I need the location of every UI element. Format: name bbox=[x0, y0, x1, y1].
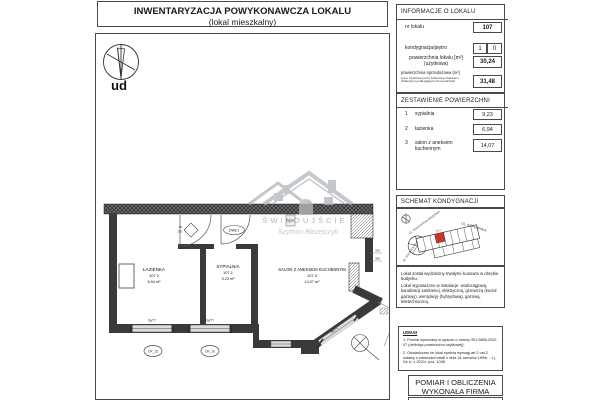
dim-330: 330 bbox=[375, 249, 380, 253]
room-bedroom-name: SYPIALNIA bbox=[216, 264, 239, 269]
usable-area-value: 30,24 bbox=[473, 56, 502, 68]
area-table-header: ZESTAWIENIE POWIERZCHNI bbox=[397, 94, 508, 108]
room-bedroom-number: 107.1 bbox=[223, 270, 234, 275]
hall-wall-right bbox=[236, 244, 258, 249]
area-table-section: ZESTAWIENIE POWIERZCHNI 1 sypialnia 9,23… bbox=[396, 93, 505, 190]
room-livingroom-name: SALON Z ANEKSEM KUCHENNYM bbox=[278, 267, 346, 272]
room-bathroom-number: 107.2 bbox=[149, 273, 160, 278]
usable-area-sublabel: (użytkowa) bbox=[405, 62, 467, 68]
left-wall bbox=[109, 214, 117, 333]
sales-area-value: 31,48 bbox=[473, 75, 502, 88]
info-header: INFORMACJE O LOKALU bbox=[397, 5, 508, 20]
room-bathroom-name: ŁAZIENKA bbox=[143, 267, 165, 272]
floor-schematic: 107 UL. KOPERNIKA UL. BOHATERÓW WRZEŚNIA… bbox=[397, 209, 504, 265]
schematic-header: SCHEMAT KONDYGNACJI bbox=[397, 196, 508, 207]
partition-livingroom bbox=[251, 249, 258, 333]
sill-label-2: hp/77 bbox=[206, 319, 214, 323]
door-width-dim: 90 bbox=[179, 225, 183, 229]
schematic-header-box: SCHEMAT KONDYGNACJI bbox=[396, 195, 505, 208]
room-bedroom-area: 9,23 m² bbox=[222, 277, 236, 281]
sill-label-1: hp/77 bbox=[148, 319, 156, 323]
entrance-door-label: DWe1 bbox=[229, 229, 239, 233]
surveyor-line-2: WYKONAŁA FIRMA bbox=[409, 387, 502, 396]
room-bathroom-area: 6,94 m² bbox=[148, 280, 162, 284]
unit-number-value: 107 bbox=[473, 22, 502, 33]
window-bay bbox=[318, 314, 359, 346]
remarks-section: UWAGI 1. Pomiar wykonany w oparciu o nor… bbox=[398, 326, 503, 371]
unit-number-label: nr lokalu bbox=[405, 25, 424, 31]
north-arrow-icon bbox=[104, 45, 139, 80]
watermark-city: ŚWINOUJŚCIE bbox=[262, 216, 347, 225]
door-diamond-tag bbox=[184, 223, 198, 237]
remarks-header: UWAGI bbox=[403, 330, 417, 335]
row-3-name: salon z aneksem kuchennym bbox=[415, 141, 467, 152]
row-2-no: 2 bbox=[405, 127, 408, 133]
window-mark-1: OK_15 bbox=[148, 349, 158, 353]
door-height-dim: 205 bbox=[177, 230, 182, 234]
shaft-top-right bbox=[351, 214, 373, 238]
schematic-compass-icon bbox=[402, 214, 410, 224]
bay-connector-wall bbox=[354, 289, 381, 302]
floor-label: kondygnacja/piętro bbox=[405, 46, 447, 52]
neighbor-balcony-lines bbox=[378, 302, 389, 346]
window-1 bbox=[130, 324, 174, 333]
schematic-map-box: 107 UL. KOPERNIKA UL. BOHATERÓW WRZEŚNIA… bbox=[396, 208, 505, 266]
row-2-name: łazienka bbox=[415, 127, 469, 133]
surveyor-line-1: POMIAR I OBLICZENIA bbox=[409, 378, 502, 387]
dim-385: 385 bbox=[375, 257, 380, 261]
watermark-signature: Szymon Błażejczyk bbox=[278, 229, 339, 236]
note-installations: Lokal wyposażono w instalacje: wodociągo… bbox=[401, 283, 500, 304]
row-2-value: 6,94 bbox=[473, 124, 502, 135]
floor-plan-drawing: pn bbox=[96, 34, 389, 399]
survey-point-icon bbox=[352, 335, 380, 361]
row-3-no: 3 bbox=[405, 141, 408, 147]
sales-area-note: (pow. użytkowa przed zabudową ściankami … bbox=[401, 77, 469, 84]
surveyor-section: POMIAR I OBLICZENIA WYKONAŁA FIRMA bbox=[408, 375, 503, 396]
duct-box bbox=[119, 264, 134, 288]
row-1-name: sypialnia bbox=[415, 112, 469, 118]
hall-wall-left bbox=[178, 244, 214, 249]
top-wall bbox=[104, 204, 373, 214]
sheet: INWENTARYZACJA POWYKONAWCZA LOKALU (loka… bbox=[0, 0, 600, 400]
row-1-no: 1 bbox=[405, 112, 408, 118]
highlighted-unit bbox=[435, 232, 446, 243]
window-2 bbox=[188, 324, 232, 333]
title-block: INWENTARYZACJA POWYKONAWCZA LOKALU (loka… bbox=[97, 1, 388, 27]
room-labels: ŁAZIENKA 107.2 6,94 m² SYPIALNIA 107.1 9… bbox=[143, 264, 346, 284]
north-arrow-label: pn bbox=[111, 80, 127, 95]
room-livingroom-area: 14,07 m² bbox=[305, 280, 321, 284]
floor-value-right: 0 bbox=[487, 43, 502, 54]
row-3-value: 14,07 bbox=[473, 139, 502, 152]
remark-1: 1. Pomiar wykonany w oparciu o normę ISO… bbox=[403, 338, 498, 347]
info-section: INFORMACJE O LOKALU nr lokalu 107 kondyg… bbox=[396, 4, 505, 93]
sheet-title: INWENTARYZACJA POWYKONAWCZA LOKALU bbox=[98, 6, 387, 17]
room-livingroom-number: 107.3 bbox=[307, 273, 318, 278]
window-mark-2: OK_16 bbox=[205, 349, 215, 353]
floor-value-left: 1 bbox=[473, 43, 487, 54]
sales-area-label: powierzchnia sprzedażowa [m²] bbox=[401, 71, 473, 76]
row-1-value: 9,23 bbox=[473, 109, 502, 120]
window-3 bbox=[271, 341, 291, 347]
floor-plan-frame: pn bbox=[95, 33, 390, 400]
remark-2: 2. Oświadczam że lokal spełnia wymogi ar… bbox=[403, 351, 498, 365]
note-walls: Lokal został wydzielony trwałymi ścianam… bbox=[401, 271, 500, 282]
schematic-notes-box: Lokal został wydzielony trwałymi ścianam… bbox=[396, 266, 505, 308]
sheet-subtitle: (lokal mieszkalny) bbox=[98, 17, 387, 27]
